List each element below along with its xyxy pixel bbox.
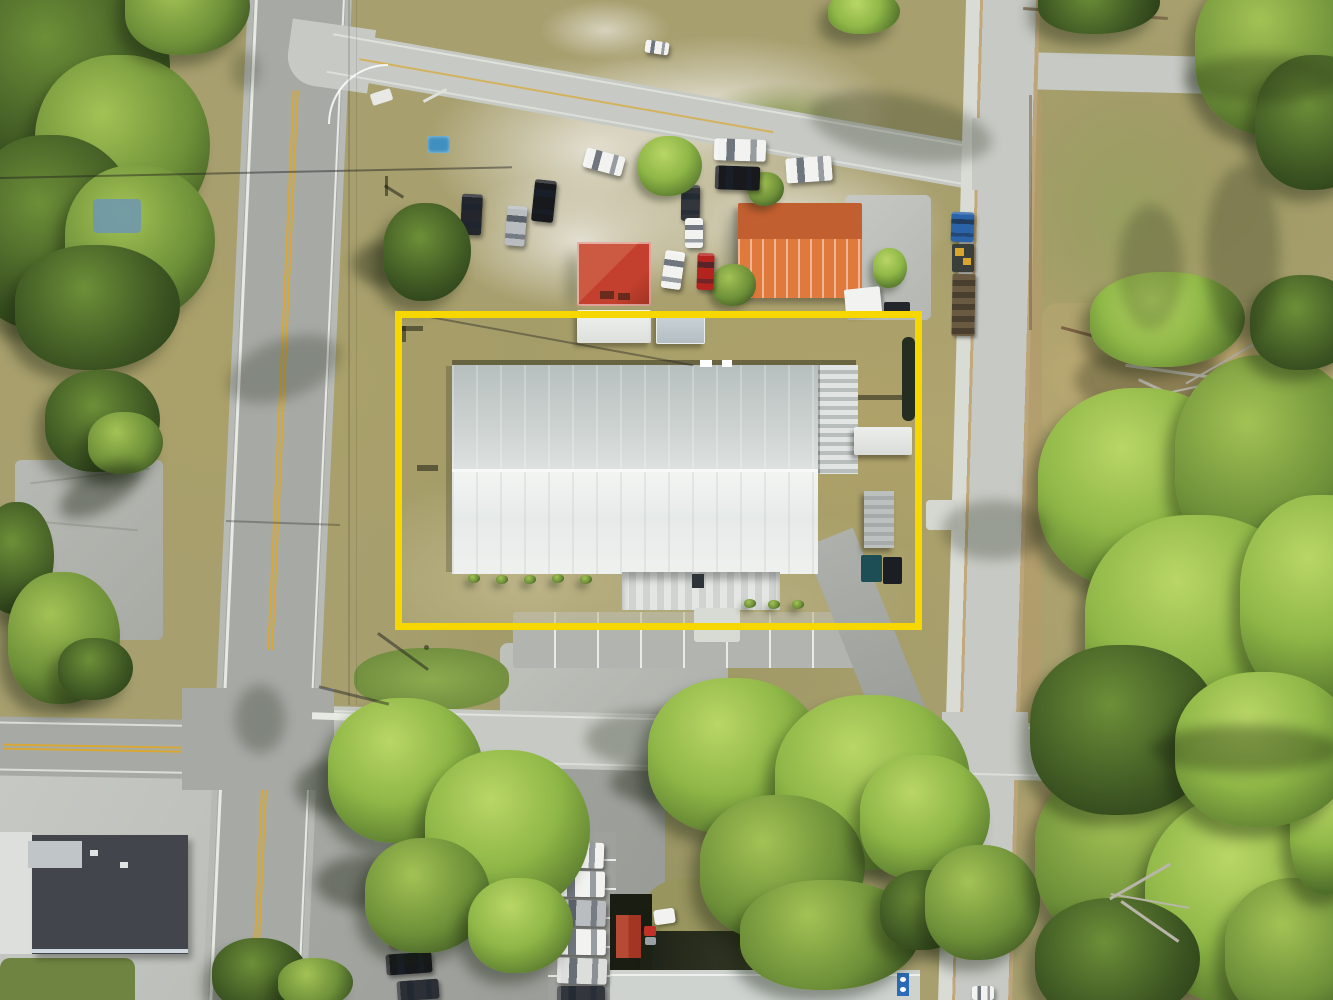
car-black-suv bbox=[531, 179, 557, 223]
sign-dot bbox=[900, 987, 906, 992]
car-silver-sedan bbox=[504, 205, 527, 247]
car-white-van bbox=[685, 218, 703, 248]
property-boundary-outline bbox=[395, 311, 922, 630]
car-black-suv bbox=[715, 165, 761, 191]
red-shed bbox=[616, 915, 641, 958]
rooftop-unit bbox=[120, 862, 128, 868]
tree-canopy bbox=[278, 958, 353, 1000]
car-dark bbox=[396, 979, 439, 1000]
grass-corner bbox=[0, 958, 135, 1000]
dark-structure bbox=[618, 293, 630, 300]
blue-kiddie-pool bbox=[427, 136, 450, 153]
tree-shadow-on-road bbox=[1150, 725, 1333, 773]
tree-shadow bbox=[1118, 205, 1183, 330]
roof-trim bbox=[32, 949, 188, 953]
cargo-box bbox=[955, 248, 964, 256]
power-line bbox=[356, 0, 357, 705]
car-white-pickup bbox=[714, 138, 767, 162]
white-pickup bbox=[653, 908, 676, 926]
tire-marks bbox=[231, 50, 259, 90]
tire-marks bbox=[235, 685, 285, 753]
roof-panel bbox=[28, 841, 82, 868]
cargo-box bbox=[963, 258, 971, 265]
power-line bbox=[348, 0, 350, 705]
dark-structure bbox=[600, 291, 614, 299]
blue-tarp bbox=[93, 199, 141, 233]
rusty-trailer bbox=[951, 274, 975, 336]
car-red bbox=[696, 253, 714, 291]
car-white-suv bbox=[785, 155, 833, 183]
rooftop-unit bbox=[90, 850, 98, 856]
car-white bbox=[557, 957, 608, 985]
aerial-photo bbox=[0, 0, 1333, 1000]
tree-shadow-on-road bbox=[1185, 55, 1333, 103]
car-on-road bbox=[972, 986, 994, 1000]
red-roof-building bbox=[577, 242, 651, 306]
fence-line bbox=[1029, 95, 1032, 330]
car-black-pickup bbox=[385, 951, 432, 975]
tree-shadow-on-road bbox=[942, 500, 1047, 560]
gray-bin bbox=[645, 937, 656, 945]
truck-blue-cab bbox=[950, 212, 974, 243]
car-dark-suv bbox=[557, 986, 605, 1000]
tree-shadow bbox=[1205, 165, 1280, 340]
sign-dot bbox=[900, 977, 906, 982]
red-bin bbox=[644, 926, 656, 936]
utility-pole bbox=[424, 645, 429, 650]
orange-roof-building bbox=[738, 203, 862, 298]
